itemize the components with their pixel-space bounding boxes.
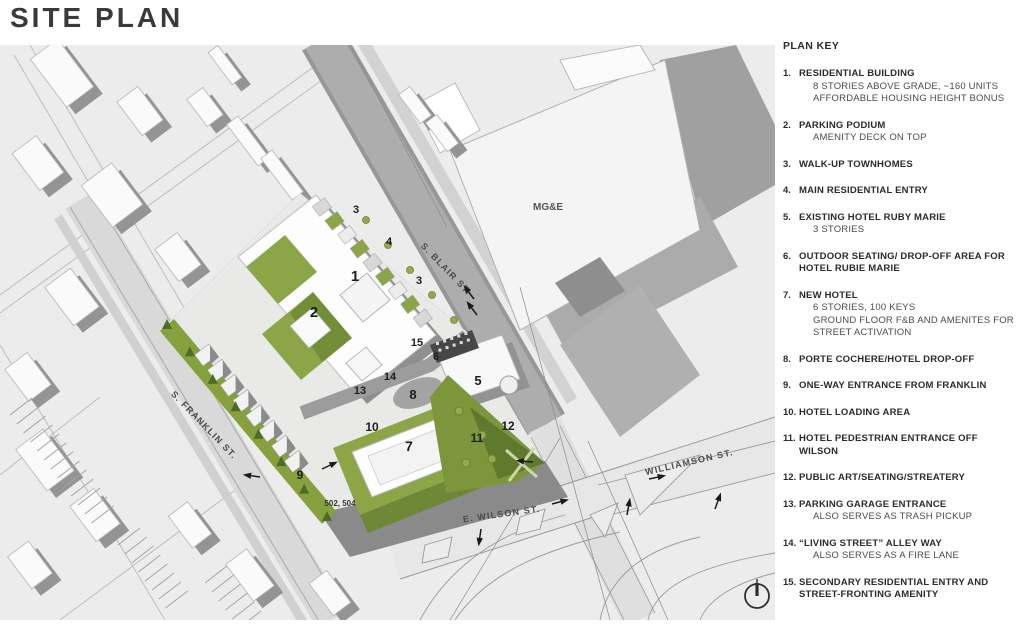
plan-key-item-9: 9.ONE-WAY ENTRANCE FROM FRANKLIN [783,380,1017,393]
plan-marker-5: 5 [474,373,481,388]
plan-key-item-7: 7.NEW HOTEL6 STORIES, 100 KEYSGROUND FLO… [783,290,1017,340]
plan-key-item-subline: ALSO SERVES AS TRASH PICKUP [813,511,1017,524]
plan-key-item-label: ONE-WAY ENTRANCE FROM FRANKLIN [799,380,1017,393]
plan-key-item-label: PUBLIC ART/SEATING/STREATERY [799,472,1017,485]
site-plan-drawing: S. BLAIR ST. S. FRANKLIN ST. E. WILSON S… [0,45,775,620]
page-title: SITE PLAN [10,2,183,34]
plan-key-item-subline: 6 STORIES, 100 KEYS [813,302,1017,315]
plan-key-item-label: EXISTING HOTEL RUBY MARIE [799,212,1017,225]
plan-key-item-number: 5. [783,212,799,237]
plan-marker-15: 15 [411,337,423,349]
plan-key-item-number: 1. [783,68,799,106]
plan-key-item-number: 14. [783,538,799,563]
plan-key-item-10: 10.HOTEL LOADING AREA [783,407,1017,420]
plan-key-item-11: 11.HOTEL PEDESTRIAN ENTRANCE OFF WILSON [783,433,1017,458]
plan-marker-14: 14 [384,371,397,383]
plan-key-item-label: PARKING PODIUM [799,120,1017,133]
plan-key-item-4: 4.MAIN RESIDENTIAL ENTRY [783,185,1017,198]
plan-marker-1: 1 [351,268,359,285]
plan-key-heading: PLAN KEY [783,40,1017,52]
plan-key-item-6: 6.OUTDOOR SEATING/ DROP-OFF AREA FOR HOT… [783,251,1017,276]
plan-key-item-subline: 3 STORIES [813,224,1017,237]
plan-key-item-number: 2. [783,120,799,145]
plan-key-item-15: 15.SECONDARY RESIDENTIAL ENTRY AND STREE… [783,577,1017,602]
plan-marker-3: 3 [353,204,359,216]
plan-key-item-label: OUTDOOR SEATING/ DROP-OFF AREA FOR HOTEL… [799,251,1017,276]
plan-marker-3: 3 [416,275,422,287]
site-plan-svg: S. BLAIR ST. S. FRANKLIN ST. E. WILSON S… [0,45,775,620]
plan-key-item-label: MAIN RESIDENTIAL ENTRY [799,185,1017,198]
plan-marker-8: 8 [409,387,416,402]
plan-key-item-3: 3.WALK-UP TOWNHOMES [783,159,1017,172]
plan-key-item-subline: 8 STORIES ABOVE GRADE, ~160 UNITS [813,81,1017,94]
plan-key-item-subline: AMENITY DECK ON TOP [813,132,1017,145]
plan-key-item-subline: GROUND FLOOR F&B AND AMENITES FOR [813,315,1017,328]
plan-marker-13: 13 [354,385,366,397]
plan-key: PLAN KEY 1.RESIDENTIAL BUILDING8 STORIES… [783,40,1017,616]
plan-key-item-1: 1.RESIDENTIAL BUILDING8 STORIES ABOVE GR… [783,68,1017,106]
plan-key-item-subline: ALSO SERVES AS A FIRE LANE [813,550,1017,563]
plan-key-item-number: 10. [783,407,799,420]
plan-key-item-label: HOTEL LOADING AREA [799,407,1017,420]
plan-key-item-label: PORTE COCHERE/HOTEL DROP-OFF [799,354,1017,367]
plan-key-item-number: 12. [783,472,799,485]
plan-key-item-number: 3. [783,159,799,172]
plan-key-item-number: 15. [783,577,799,602]
plan-key-item-number: 13. [783,499,799,524]
plan-key-item-12: 12.PUBLIC ART/SEATING/STREATERY [783,472,1017,485]
plan-key-item-label: “LIVING STREET” ALLEY WAY [799,538,1017,551]
plan-marker-11: 11 [471,431,484,445]
plan-marker-6: 6 [433,351,439,363]
mge-label: MG&E [533,202,563,213]
plan-key-item-13: 13.PARKING GARAGE ENTRANCEALSO SERVES AS… [783,499,1017,524]
plan-key-item-label: PARKING GARAGE ENTRANCE [799,499,1017,512]
plan-key-item-subline: AFFORDABLE HOUSING HEIGHT BONUS [813,93,1017,106]
plan-marker-10: 10 [365,420,379,434]
plan-key-item-number: 11. [783,433,799,458]
plan-marker-9: 9 [297,468,304,482]
plan-key-item-2: 2.PARKING PODIUMAMENITY DECK ON TOP [783,120,1017,145]
site-plan-page: { "title": "SITE PLAN", "plan_key": { "h… [0,0,1024,628]
plan-marker-2: 2 [310,304,318,321]
plan-key-item-14: 14.“LIVING STREET” ALLEY WAYALSO SERVES … [783,538,1017,563]
plan-key-item-label: SECONDARY RESIDENTIAL ENTRY AND STREET-F… [799,577,1017,602]
plan-key-item-subline: STREET ACTIVATION [813,327,1017,340]
plan-key-item-label: HOTEL PEDESTRIAN ENTRANCE OFF WILSON [799,433,1017,458]
plan-key-item-label: WALK-UP TOWNHOMES [799,159,1017,172]
plan-key-item-number: 7. [783,290,799,340]
plan-marker-7: 7 [405,438,413,454]
plan-marker-12: 12 [501,419,515,433]
plan-key-item-number: 9. [783,380,799,393]
plan-key-item-label: NEW HOTEL [799,290,1017,303]
plan-key-item-label: RESIDENTIAL BUILDING [799,68,1017,81]
plan-key-item-number: 6. [783,251,799,276]
plan-key-item-8: 8.PORTE COCHERE/HOTEL DROP-OFF [783,354,1017,367]
plan-marker-4: 4 [386,236,393,248]
plan-key-item-number: 4. [783,185,799,198]
plan-key-item-5: 5.EXISTING HOTEL RUBY MARIE3 STORIES [783,212,1017,237]
plan-key-list: 1.RESIDENTIAL BUILDING8 STORIES ABOVE GR… [783,68,1017,602]
plan-key-item-number: 8. [783,354,799,367]
address-label: 502, 504 [324,499,356,508]
